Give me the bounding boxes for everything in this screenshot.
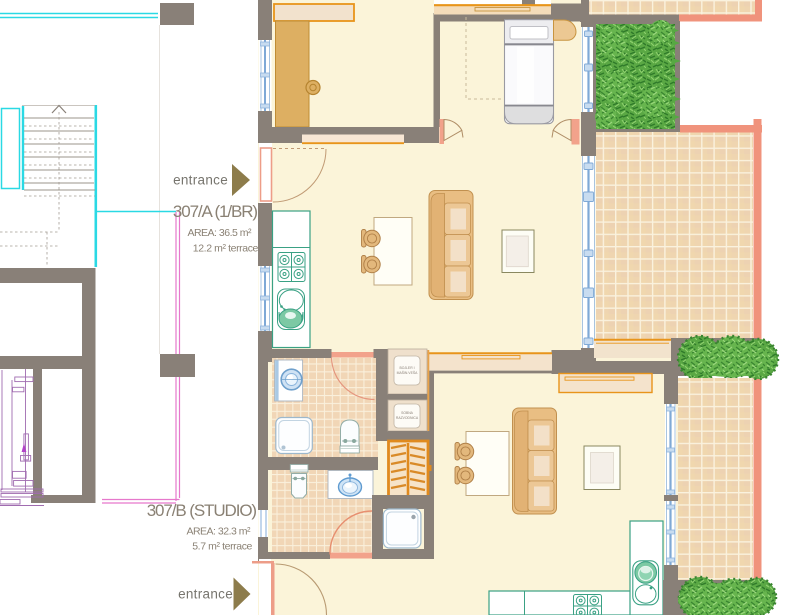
svg-text:entrance: entrance [173, 173, 228, 188]
svg-text:entrance: entrance [178, 587, 233, 602]
svg-text:12.2 m² terrace: 12.2 m² terrace [193, 243, 259, 255]
svg-text:SOBNA: SOBNA [401, 411, 414, 415]
svg-text:BOJLER I: BOJLER I [399, 366, 414, 370]
svg-text:MAŠIN.VEŠA: MAŠIN.VEŠA [397, 370, 418, 375]
svg-text:307/B (STUDIO): 307/B (STUDIO) [147, 501, 257, 520]
svg-text:5.7 m² terrace: 5.7 m² terrace [192, 541, 252, 553]
svg-text:AREA: 36.5 m²: AREA: 36.5 m² [187, 227, 252, 239]
svg-text:307/A (1/BR): 307/A (1/BR) [173, 202, 258, 221]
svg-text:RAZVODNICA: RAZVODNICA [396, 416, 419, 420]
svg-text:AREA: 32.3 m²: AREA: 32.3 m² [186, 526, 251, 538]
